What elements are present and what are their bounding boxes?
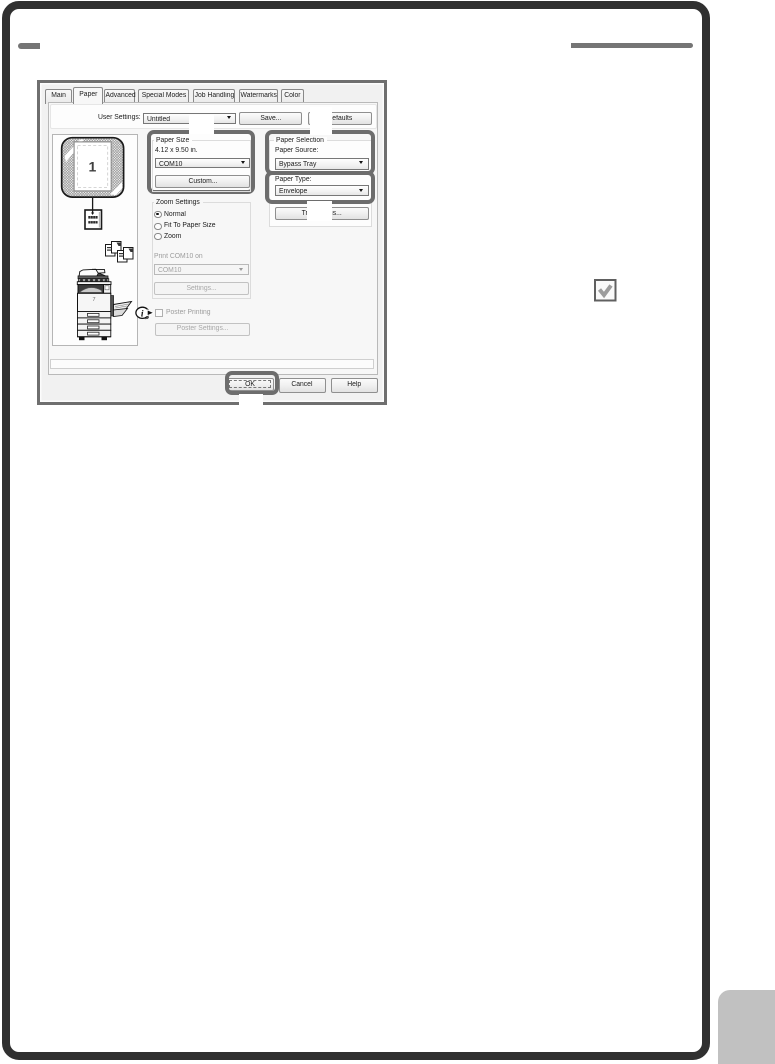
svg-text:7: 7 xyxy=(93,297,96,303)
svg-text:1: 1 xyxy=(89,158,97,174)
svg-text:i: i xyxy=(141,309,144,319)
